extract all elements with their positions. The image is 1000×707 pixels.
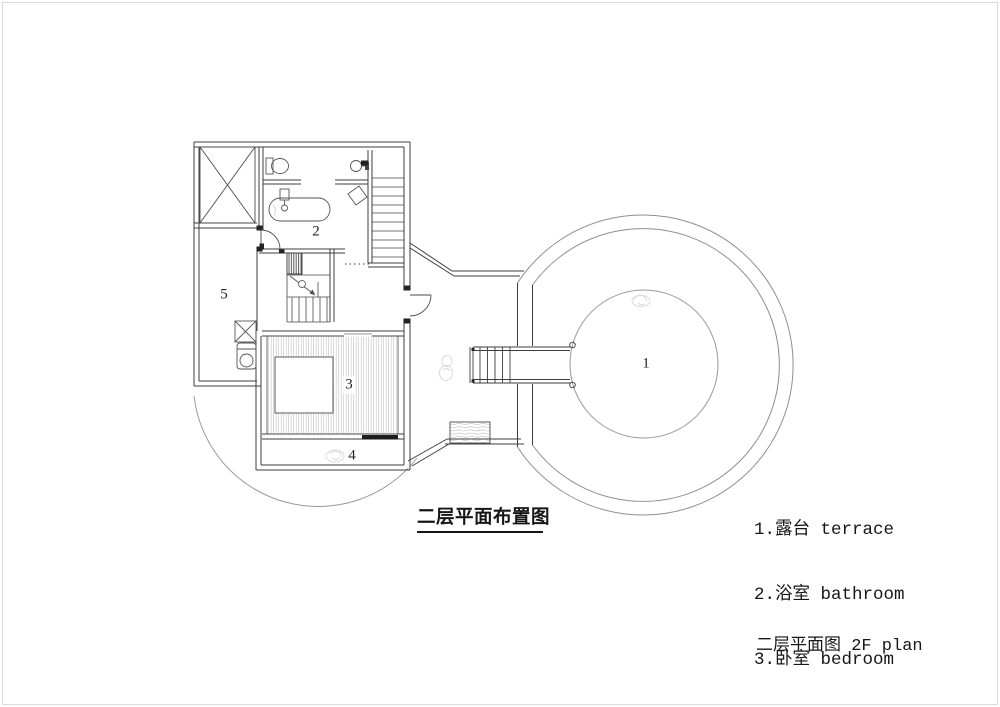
bridge-stair (470, 342, 575, 388)
legend-item-terrace: 1.露台 terrace (754, 520, 929, 542)
room-number-utility-balcony: 5 (220, 287, 228, 304)
room-number-bedroom: 3 (343, 377, 355, 394)
bedroom (267, 332, 398, 440)
terrace-outer-wall (518, 215, 794, 515)
sketch-terrace (632, 295, 650, 307)
terrace-circles (518, 215, 794, 515)
plan-title: 二层平面布置图 (417, 503, 543, 533)
sliding-door-panel (362, 435, 398, 440)
floor-plan-sheet: 二层平面布置图 1.露台 terrace 2.浴室 bathroom 3.卧室 … (0, 0, 1000, 707)
flue-shaft (287, 253, 302, 274)
bed (275, 357, 333, 413)
legend-item-bathroom: 2.浴室 bathroom (754, 585, 929, 607)
sheet-caption: 二层平面图 2F plan (756, 630, 923, 656)
room-number-terrace: 1 (642, 356, 650, 373)
planter-box (450, 422, 490, 443)
room-number-bathroom: 2 (312, 224, 320, 241)
room-number-balcony: 4 (348, 448, 356, 465)
sketch-neck (440, 356, 453, 381)
room-legend: 1.露台 terrace 2.浴室 bathroom 3.卧室 bedroom … (754, 476, 929, 707)
